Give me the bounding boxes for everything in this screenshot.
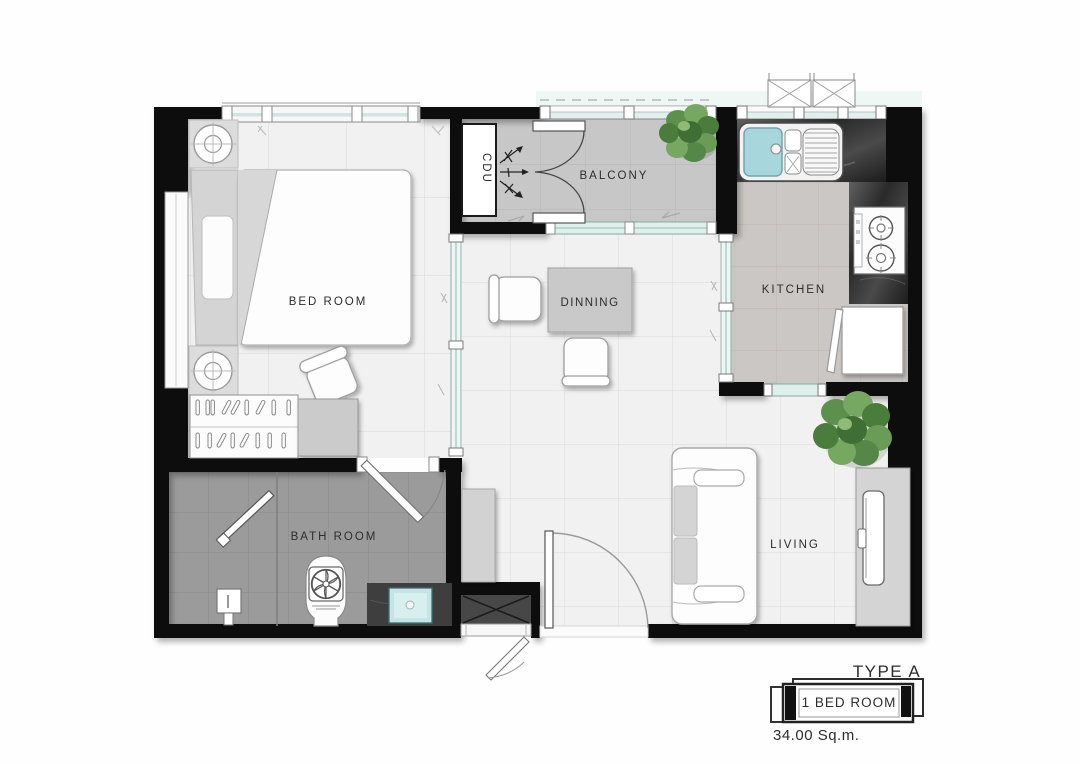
svg-text:BED ROOM: BED ROOM xyxy=(289,296,368,308)
svg-text:CDU: CDU xyxy=(480,153,492,184)
svg-text:1 BED ROOM: 1 BED ROOM xyxy=(802,695,897,710)
svg-text:DINNING: DINNING xyxy=(560,297,619,309)
svg-text:BATH ROOM: BATH ROOM xyxy=(291,531,378,543)
svg-text:BALCONY: BALCONY xyxy=(580,170,649,182)
svg-text:LIVING: LIVING xyxy=(770,539,820,551)
svg-text:KITCHEN: KITCHEN xyxy=(762,284,826,296)
svg-text:34.00 Sq.m.: 34.00 Sq.m. xyxy=(773,727,859,744)
